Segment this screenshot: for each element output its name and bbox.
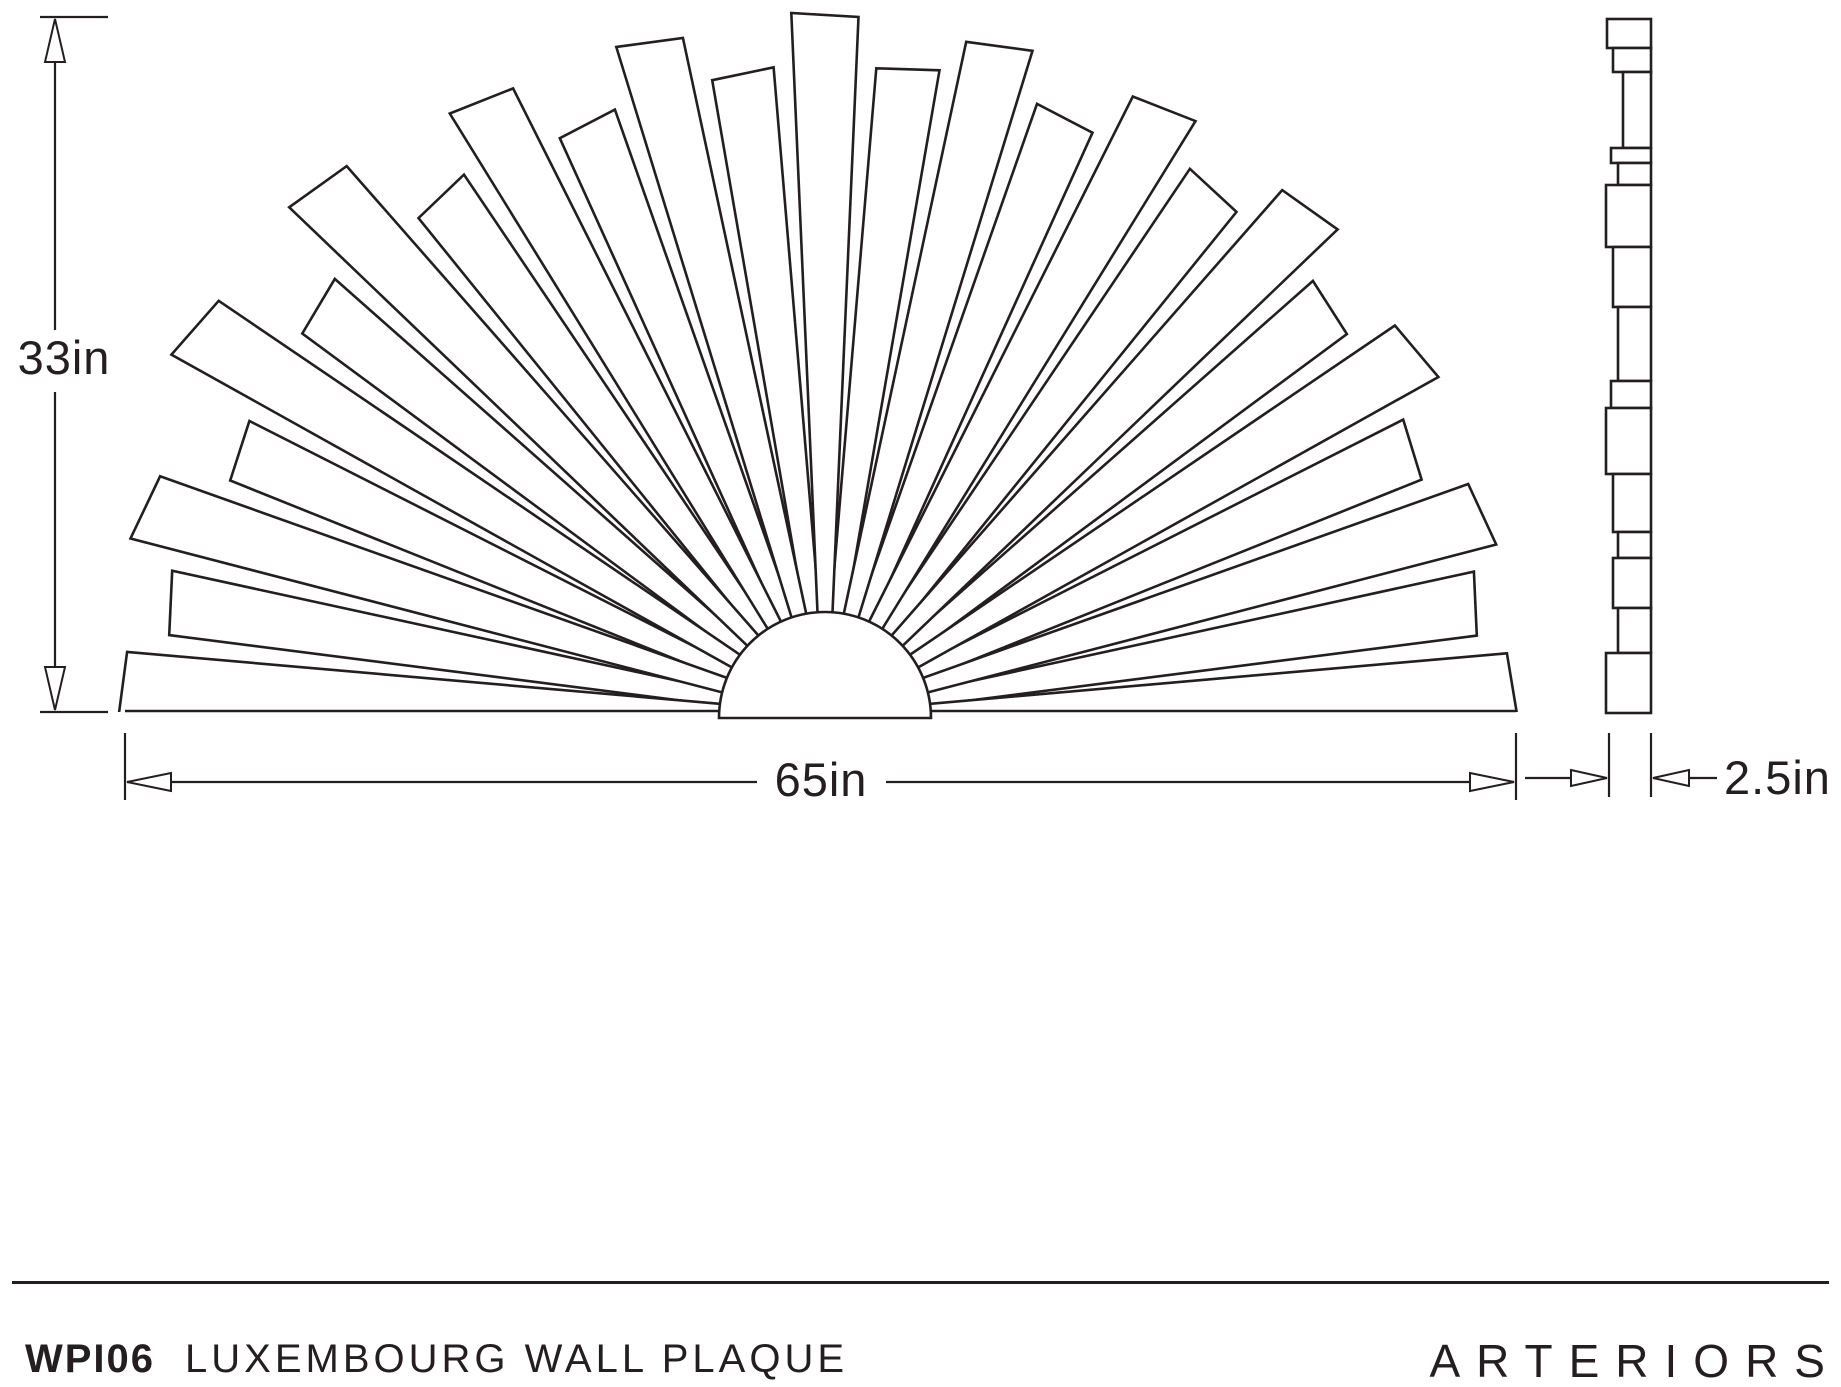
arrow-left-icon [1653, 770, 1689, 786]
side-profile-block [1618, 163, 1651, 185]
arrow-right-icon [1571, 770, 1607, 786]
side-profile-block [1606, 653, 1651, 713]
side-profile-block [1613, 48, 1651, 72]
side-profile-block [1611, 381, 1651, 408]
side-profile-block [1613, 474, 1651, 532]
arrow-right-icon [1470, 773, 1514, 791]
height-dimension-label: 33in [18, 331, 111, 384]
side-profile-block [1613, 558, 1651, 608]
product-code: WPI06 [25, 1337, 155, 1381]
arrow-left-icon [127, 773, 171, 791]
side-profile-block [1607, 19, 1651, 48]
side-profile-block [1618, 307, 1651, 381]
side-profile-block [1623, 72, 1651, 148]
dimension-height: 33in [18, 17, 111, 712]
side-profile-block [1611, 148, 1651, 163]
arrow-up-icon [45, 19, 65, 62]
depth-dimension-label: 2.5in [1724, 751, 1831, 804]
side-view-profile [1606, 19, 1651, 713]
dimension-width: 65in [125, 733, 1516, 806]
side-profile-block [1606, 408, 1651, 474]
technical-drawing: 33in 65in 2.5in [0, 0, 1841, 1387]
side-profile-block [1618, 608, 1651, 653]
spec-sheet-page: 33in 65in 2.5in WPI06LUXEMBOURG WALL PLA… [0, 0, 1841, 1387]
product-name: LUXEMBOURG WALL PLAQUE [185, 1337, 848, 1381]
side-profile-block [1606, 185, 1651, 247]
footer-divider [12, 1281, 1829, 1284]
side-profile-block [1618, 532, 1651, 558]
dimension-depth: 2.5in [1525, 733, 1831, 804]
product-title: WPI06LUXEMBOURG WALL PLAQUE [25, 1337, 848, 1382]
brand-logo: ARTERIORS [1429, 1334, 1841, 1387]
side-profile-block [1613, 247, 1651, 307]
width-dimension-label: 65in [775, 753, 868, 806]
arrow-down-icon [45, 667, 65, 710]
